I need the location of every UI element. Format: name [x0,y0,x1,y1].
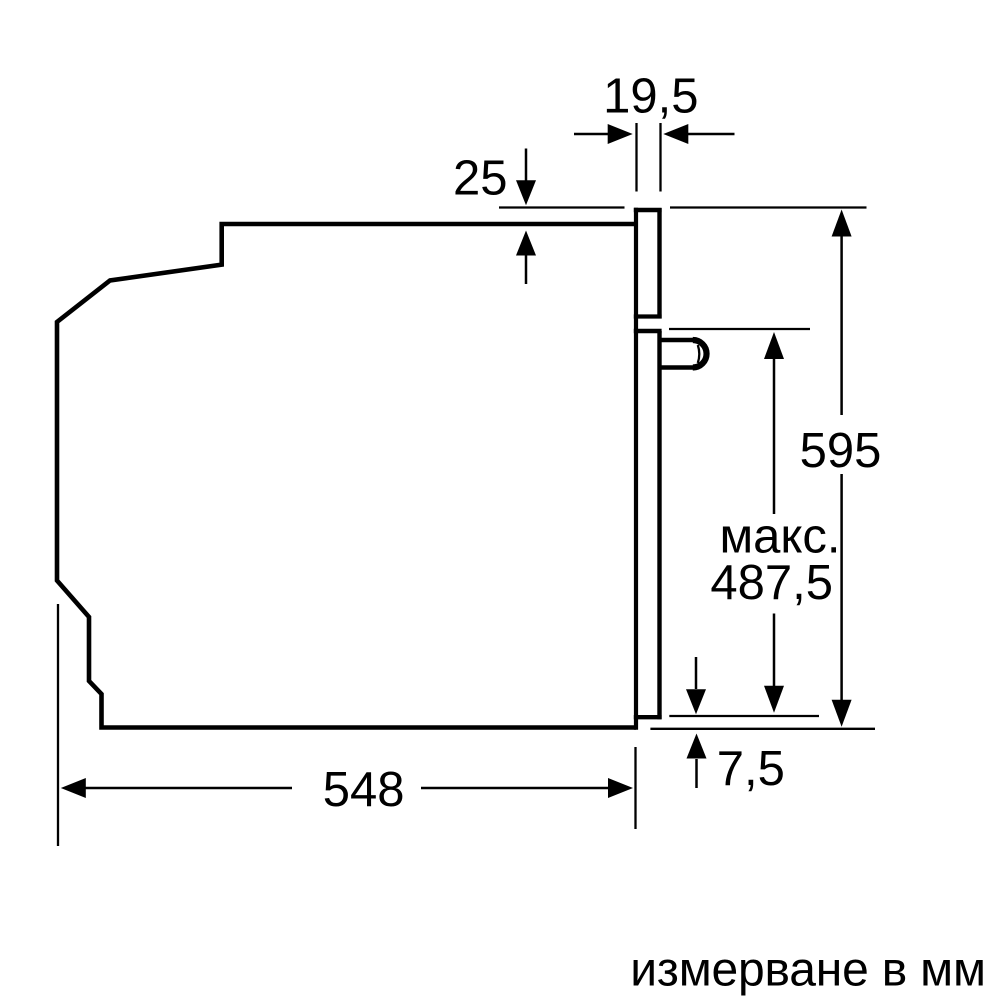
svg-text:измерване в мм: измерване в мм [630,944,985,997]
svg-text:19,5: 19,5 [603,70,698,124]
svg-text:25: 25 [453,152,508,206]
svg-text:595: 595 [800,424,882,478]
svg-text:7,5: 7,5 [717,742,785,796]
svg-text:487,5: 487,5 [710,556,833,610]
svg-text:548: 548 [323,763,405,817]
